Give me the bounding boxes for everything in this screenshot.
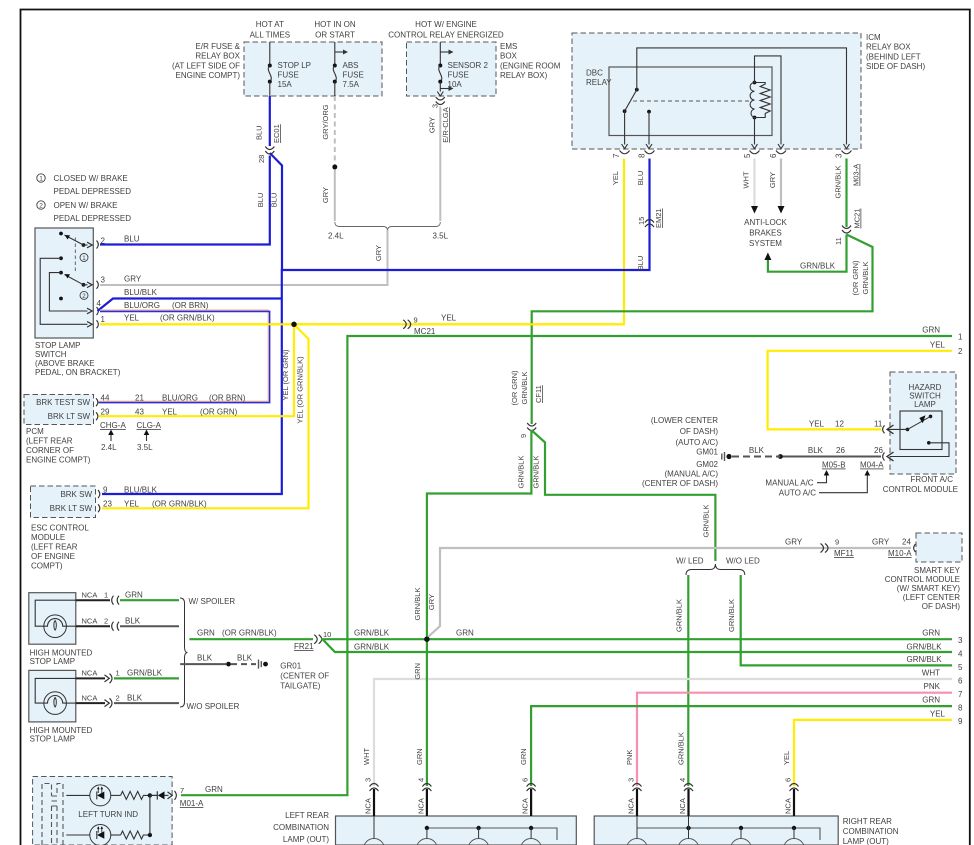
svg-text:GRN: GRN (922, 696, 940, 705)
svg-text:NCA: NCA (82, 617, 98, 626)
svg-text:FRONT A/C: FRONT A/C (910, 475, 953, 484)
svg-text:GRN/BLK: GRN/BLK (702, 505, 711, 538)
svg-text:GRN: GRN (415, 748, 424, 765)
svg-text:YEL: YEL (124, 499, 140, 508)
svg-text:CLOSED W/ BRAKE: CLOSED W/ BRAKE (54, 174, 128, 183)
svg-text:(CENTER OF DASH): (CENTER OF DASH) (642, 479, 718, 488)
svg-text:10: 10 (323, 630, 331, 639)
svg-text:9: 9 (519, 434, 528, 438)
svg-text:BRK LT SW: BRK LT SW (48, 412, 91, 421)
svg-text:23: 23 (103, 499, 112, 508)
svg-text:ALL TIMES: ALL TIMES (250, 31, 290, 40)
svg-text:(OR BRN): (OR BRN) (209, 394, 246, 403)
svg-text:4: 4 (678, 778, 687, 782)
svg-text:OF DASH): OF DASH) (922, 602, 961, 611)
svg-text:(OR BRN): (OR BRN) (172, 301, 209, 310)
svg-text:FUSE: FUSE (278, 71, 299, 80)
svg-text:3: 3 (627, 778, 636, 782)
svg-text:(LEFT CENTER: (LEFT CENTER (903, 593, 960, 602)
svg-text:3: 3 (101, 276, 106, 285)
svg-text:NCA: NCA (364, 798, 373, 814)
svg-text:(LEFT REAR: (LEFT REAR (31, 543, 78, 552)
svg-text:9: 9 (414, 316, 418, 325)
svg-text:OF DASH): OF DASH) (680, 427, 719, 436)
svg-text:GRN: GRN (922, 629, 940, 638)
svg-text:BLK: BLK (808, 446, 824, 455)
svg-text:GRY: GRY (124, 275, 142, 284)
svg-text:26: 26 (836, 446, 845, 455)
svg-text:2.4L: 2.4L (328, 232, 344, 241)
svg-text:GRY: GRY (321, 187, 330, 203)
svg-text:CHG-A: CHG-A (100, 421, 126, 430)
svg-text:7: 7 (958, 690, 963, 699)
svg-text:GRN: GRN (125, 591, 143, 600)
svg-text:BLK: BLK (197, 654, 213, 663)
svg-text:RIGHT REAR: RIGHT REAR (843, 817, 892, 826)
svg-text:CONTROL MODULE: CONTROL MODULE (883, 485, 958, 494)
svg-text:COMBINATION: COMBINATION (843, 827, 899, 836)
svg-text:3: 3 (958, 636, 963, 645)
svg-text:M01-A: M01-A (180, 799, 204, 808)
svg-text:GRN: GRN (205, 785, 223, 794)
svg-text:ANTI-LOCK: ANTI-LOCK (744, 218, 787, 227)
svg-text:YEL: YEL (930, 340, 946, 349)
svg-text:HOT AT: HOT AT (256, 20, 284, 29)
svg-text:BLU: BLU (270, 193, 279, 208)
svg-text:MF11: MF11 (834, 549, 854, 558)
svg-text:GRN: GRN (519, 748, 528, 765)
svg-text:GRY: GRY (428, 117, 437, 133)
svg-text:(W/ SMART KEY): (W/ SMART KEY) (897, 584, 961, 593)
svg-text:TAILGATE): TAILGATE) (280, 682, 320, 691)
svg-text:GM01: GM01 (696, 448, 718, 457)
svg-text:(ENGINE ROOM: (ENGINE ROOM (500, 61, 561, 70)
svg-text:43: 43 (135, 407, 144, 416)
svg-text:(AT LEFT SIDE OF: (AT LEFT SIDE OF (172, 61, 240, 70)
svg-text:1: 1 (101, 315, 106, 324)
svg-text:PEDAL DEPRESSED: PEDAL DEPRESSED (54, 214, 132, 223)
svg-text:GRN: GRN (922, 326, 940, 335)
svg-text:SIDE OF DASH): SIDE OF DASH) (866, 62, 925, 71)
svg-text:YEL: YEL (809, 419, 825, 428)
svg-text:FUSE: FUSE (343, 71, 364, 80)
svg-text:7: 7 (612, 153, 621, 158)
svg-text:1: 1 (104, 591, 108, 600)
svg-text:BLU: BLU (636, 256, 645, 271)
svg-text:3: 3 (835, 153, 844, 158)
svg-text:AUTO A/C: AUTO A/C (779, 489, 816, 498)
svg-text:BLU/ORG: BLU/ORG (162, 394, 198, 403)
svg-text:29: 29 (101, 407, 110, 416)
svg-text:E/R-CLGA: E/R-CLGA (441, 107, 450, 142)
svg-text:OR START: OR START (315, 31, 355, 40)
svg-text:YEL: YEL (930, 709, 946, 718)
svg-text:4: 4 (958, 650, 963, 659)
svg-text:(CENTER OF: (CENTER OF (280, 672, 329, 681)
svg-text:BLU/BLK: BLU/BLK (124, 485, 158, 494)
svg-text:15A: 15A (278, 80, 293, 89)
svg-text:GRY: GRY (768, 172, 777, 188)
svg-text:BLK: BLK (127, 693, 143, 702)
svg-text:BLU: BLU (124, 235, 140, 244)
svg-text:LAMP (OUT): LAMP (OUT) (283, 835, 329, 844)
svg-text:3: 3 (364, 778, 373, 782)
svg-text:1: 1 (116, 669, 120, 678)
svg-text:GRN/BLK: GRN/BLK (800, 262, 836, 271)
svg-text:STOP LAMP: STOP LAMP (30, 657, 76, 666)
svg-text:2: 2 (104, 617, 108, 626)
svg-text:(OR GRN): (OR GRN) (200, 407, 238, 416)
svg-text:9: 9 (103, 485, 108, 494)
svg-text:BLU/ORG: BLU/ORG (124, 301, 160, 310)
svg-text:PEDAL, ON BRACKET): PEDAL, ON BRACKET) (35, 368, 121, 377)
svg-text:COMPT): COMPT) (31, 562, 63, 571)
svg-text:GRY: GRY (872, 538, 890, 547)
svg-text:DBC: DBC (586, 69, 603, 78)
svg-text:STOP LP: STOP LP (278, 61, 312, 70)
svg-text:YEL (OR GRN/BLK): YEL (OR GRN/BLK) (296, 356, 305, 424)
svg-text:BRK SW: BRK SW (60, 490, 92, 499)
svg-text:ENGINE COMPT): ENGINE COMPT) (26, 456, 91, 465)
svg-text:8: 8 (958, 704, 963, 713)
svg-text:24: 24 (902, 538, 911, 547)
svg-text:(ABOVE BRAKE: (ABOVE BRAKE (35, 359, 95, 368)
svg-text:NCA: NCA (784, 798, 793, 814)
svg-text:BOX: BOX (500, 52, 518, 61)
svg-text:ENGINE COMPT): ENGINE COMPT) (176, 71, 241, 80)
svg-text:BLU: BLU (255, 125, 264, 140)
svg-text:GRY: GRY (785, 538, 803, 547)
svg-text:(OR GRN): (OR GRN) (510, 370, 519, 405)
svg-text:RELAY BOX): RELAY BOX) (500, 71, 548, 80)
svg-text:GRN/BLK: GRN/BLK (677, 732, 686, 765)
svg-text:YEL: YEL (162, 407, 178, 416)
svg-text:CF11: CF11 (534, 385, 543, 403)
svg-text:YEL: YEL (782, 751, 791, 765)
svg-text:6: 6 (769, 153, 778, 158)
svg-text:M03-A: M03-A (852, 164, 861, 186)
svg-text:BRK LT SW: BRK LT SW (50, 504, 93, 513)
svg-text:W/O SPOILER: W/O SPOILER (187, 702, 240, 711)
svg-text:GRN/BLK: GRN/BLK (127, 669, 163, 678)
svg-text:OPEN W/ BRAKE: OPEN W/ BRAKE (54, 201, 118, 210)
svg-text:(OR GRN/BLK): (OR GRN/BLK) (222, 629, 277, 638)
svg-text:WHT: WHT (362, 748, 371, 765)
svg-text:(OR GRN/BLK): (OR GRN/BLK) (160, 314, 215, 323)
svg-text:CLG-A: CLG-A (137, 421, 162, 430)
svg-text:1: 1 (958, 333, 963, 342)
svg-text:GRN/BLK: GRN/BLK (354, 643, 390, 652)
svg-text:GRN/BLK: GRN/BLK (520, 372, 529, 405)
svg-text:LEFT REAR: LEFT REAR (285, 811, 329, 820)
svg-text:GRN: GRN (413, 663, 422, 680)
svg-text:2: 2 (116, 693, 120, 702)
svg-text:(BEHIND LEFT: (BEHIND LEFT (866, 52, 921, 61)
svg-text:GRN/BLK: GRN/BLK (517, 456, 526, 489)
svg-text:BLU/BLK: BLU/BLK (124, 288, 158, 297)
svg-text:M05-B: M05-B (822, 461, 846, 470)
svg-text:W/ SPOILER: W/ SPOILER (189, 597, 236, 606)
svg-text:44: 44 (101, 394, 110, 403)
svg-text:GRY: GRY (374, 245, 383, 261)
svg-text:ICM: ICM (866, 33, 881, 42)
svg-text:HOT W/ ENGINE: HOT W/ ENGINE (415, 20, 477, 29)
svg-text:GRN/BLK: GRN/BLK (532, 456, 541, 489)
svg-text:STOP LAMP: STOP LAMP (30, 735, 76, 744)
svg-text:NCA: NCA (521, 798, 530, 814)
svg-text:W/ LED: W/ LED (676, 557, 704, 566)
svg-text:LEFT TURN IND: LEFT TURN IND (78, 810, 138, 819)
svg-text:SWITCH: SWITCH (35, 350, 67, 359)
svg-text:1: 1 (82, 255, 86, 262)
svg-text:GRN/BLK: GRN/BLK (675, 599, 684, 632)
svg-text:(AUTO A/C): (AUTO A/C) (675, 438, 718, 447)
svg-text:LAMP: LAMP (914, 400, 936, 409)
svg-text:HOT IN ON: HOT IN ON (314, 20, 355, 29)
svg-text:MANUAL A/C: MANUAL A/C (765, 479, 813, 488)
svg-text:RELAY: RELAY (586, 78, 612, 87)
svg-text:NCA: NCA (627, 798, 636, 814)
svg-text:RELAY BOX: RELAY BOX (866, 43, 911, 52)
svg-text:GRN/BLK: GRN/BLK (354, 629, 390, 638)
svg-text:21: 21 (135, 394, 144, 403)
svg-text:12: 12 (835, 419, 844, 428)
svg-text:6: 6 (784, 778, 793, 782)
svg-text:BRAKES: BRAKES (749, 228, 781, 237)
svg-text:11: 11 (834, 237, 843, 245)
svg-text:EC01: EC01 (272, 124, 281, 143)
svg-text:YEL (OR GRN): YEL (OR GRN) (281, 349, 290, 400)
svg-text:CONTROL MODULE: CONTROL MODULE (885, 575, 960, 584)
svg-text:M04-A: M04-A (860, 461, 884, 470)
svg-text:GRN: GRN (456, 629, 474, 638)
svg-text:7: 7 (180, 786, 184, 795)
svg-text:NCA: NCA (416, 798, 425, 814)
svg-text:GRN/BLK: GRN/BLK (834, 166, 843, 199)
svg-text:RELAY BOX: RELAY BOX (195, 52, 240, 61)
svg-text:6: 6 (958, 677, 963, 686)
svg-text:1: 1 (39, 176, 43, 183)
svg-text:BLU: BLU (636, 171, 645, 186)
svg-text:2: 2 (958, 347, 963, 356)
svg-text:2: 2 (82, 293, 86, 300)
svg-text:SMART KEY: SMART KEY (914, 566, 961, 575)
svg-text:(LEFT REAR: (LEFT REAR (26, 437, 73, 446)
svg-text:GR01: GR01 (280, 662, 301, 671)
svg-text:NCA: NCA (82, 669, 98, 678)
svg-text:PNK: PNK (924, 682, 941, 691)
svg-text:CORNER OF: CORNER OF (26, 446, 74, 455)
svg-text:WHT: WHT (922, 669, 940, 678)
svg-text:3.5L: 3.5L (137, 443, 153, 452)
svg-text:GRN/BLK: GRN/BLK (413, 588, 422, 621)
svg-text:GRN/BLK: GRN/BLK (727, 599, 736, 632)
svg-text:PNK: PNK (625, 750, 634, 765)
svg-text:BLK: BLK (125, 617, 141, 626)
svg-text:7.5A: 7.5A (343, 80, 360, 89)
svg-text:BLK: BLK (749, 446, 765, 455)
svg-text:COMBINATION: COMBINATION (273, 823, 329, 832)
svg-text:3.5L: 3.5L (433, 232, 449, 241)
svg-text:EMS: EMS (500, 42, 517, 51)
svg-text:GRY: GRY (427, 594, 436, 610)
svg-text:SENSOR 2: SENSOR 2 (448, 61, 489, 70)
svg-text:(OR GRN): (OR GRN) (851, 260, 860, 295)
svg-text:5: 5 (958, 663, 963, 672)
svg-text:FR21: FR21 (294, 642, 314, 651)
svg-text:ESC CONTROL: ESC CONTROL (31, 524, 89, 533)
svg-text:W/O LED: W/O LED (726, 557, 760, 566)
svg-text:PCM: PCM (26, 427, 44, 436)
svg-text:LAMP (OUT): LAMP (OUT) (843, 837, 889, 845)
svg-text:GRN/BLK: GRN/BLK (906, 655, 942, 664)
svg-text:YEL: YEL (124, 314, 140, 323)
svg-text:BLU: BLU (256, 193, 265, 208)
svg-text:3: 3 (431, 104, 440, 108)
svg-text:SYSTEM: SYSTEM (749, 239, 782, 248)
svg-text:(MANUAL A/C): (MANUAL A/C) (665, 470, 719, 479)
svg-text:9: 9 (835, 538, 839, 547)
svg-text:M10-A: M10-A (888, 549, 912, 558)
svg-text:STOP LAMP: STOP LAMP (35, 341, 81, 350)
svg-text:NCA: NCA (678, 798, 687, 814)
svg-text:2: 2 (39, 203, 43, 210)
svg-text:4: 4 (416, 778, 425, 782)
svg-text:CONTROL RELAY ENERGIZED: CONTROL RELAY ENERGIZED (388, 31, 504, 40)
svg-text:26: 26 (874, 446, 883, 455)
svg-text:YEL: YEL (441, 314, 457, 323)
svg-text:11: 11 (874, 419, 883, 428)
svg-text:4: 4 (97, 299, 102, 308)
svg-text:NCA: NCA (82, 591, 98, 600)
svg-text:PEDAL DEPRESSED: PEDAL DEPRESSED (54, 187, 132, 196)
svg-text:MC21: MC21 (414, 327, 436, 336)
svg-text:(OR GRN/BLK): (OR GRN/BLK) (152, 499, 207, 508)
svg-text:GM02: GM02 (696, 460, 718, 469)
svg-text:28: 28 (257, 155, 266, 163)
svg-text:BLK: BLK (237, 654, 253, 663)
svg-text:WHT: WHT (742, 171, 751, 188)
svg-text:FUSE: FUSE (448, 71, 469, 80)
svg-text:GRN: GRN (197, 629, 215, 638)
svg-text:ABS: ABS (343, 61, 359, 70)
svg-text:MC21: MC21 (853, 208, 862, 228)
svg-text:10A: 10A (448, 80, 463, 89)
svg-text:2.4L: 2.4L (101, 443, 117, 452)
svg-text:5: 5 (743, 153, 752, 158)
svg-text:E/R FUSE &: E/R FUSE & (196, 42, 241, 51)
svg-text:15: 15 (637, 217, 646, 225)
svg-text:OF ENGINE: OF ENGINE (31, 552, 75, 561)
svg-text:YEL: YEL (611, 171, 620, 185)
svg-text:GRN/BLK: GRN/BLK (906, 643, 942, 652)
svg-text:(LOWER CENTER: (LOWER CENTER (651, 416, 718, 425)
svg-text:NCA: NCA (82, 693, 98, 702)
svg-text:GRN/BLK: GRN/BLK (861, 262, 870, 295)
svg-text:8: 8 (638, 153, 647, 158)
svg-text:BRK TEST SW: BRK TEST SW (36, 398, 90, 407)
svg-text:EM21: EM21 (654, 208, 663, 228)
svg-text:9: 9 (958, 717, 963, 726)
svg-text:MODULE: MODULE (31, 533, 65, 542)
svg-text:GRY/ORG: GRY/ORG (321, 104, 330, 139)
svg-text:6: 6 (521, 778, 530, 782)
